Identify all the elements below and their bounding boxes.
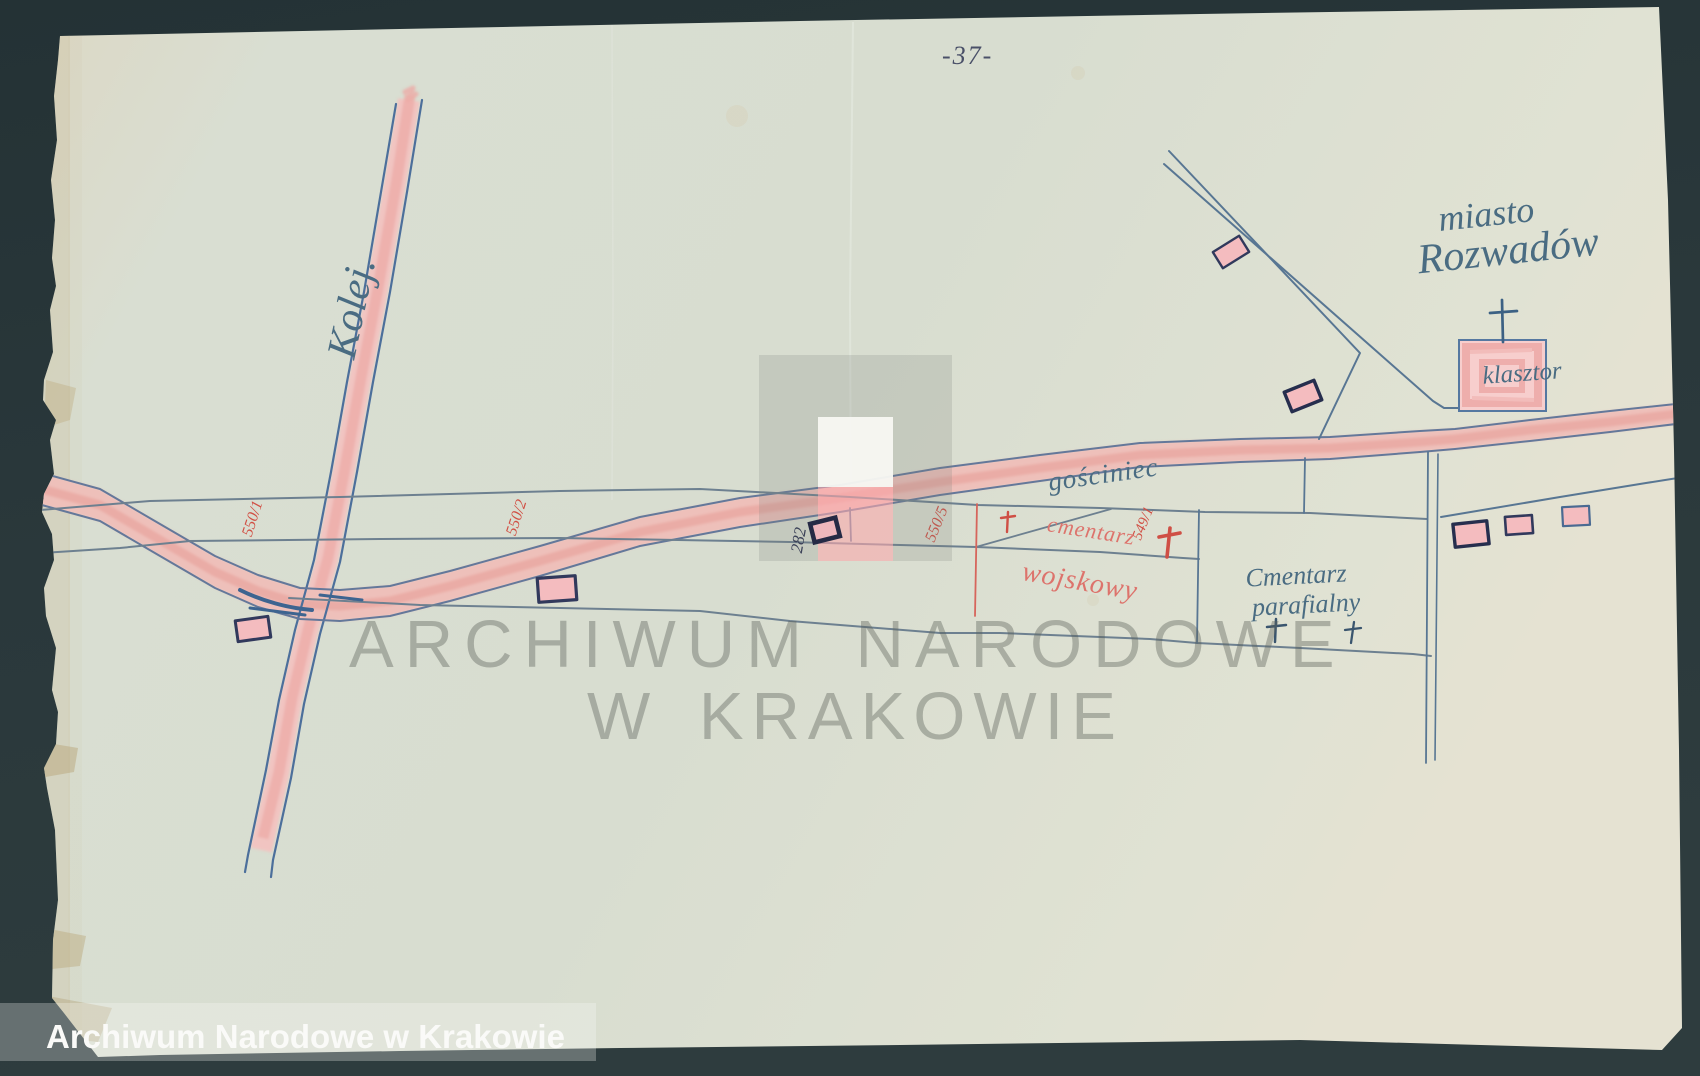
svg-text:W KRAKOWIE: W KRAKOWIE bbox=[587, 679, 1124, 754]
svg-text:ARCHIWUM NARODOWE: ARCHIWUM NARODOWE bbox=[349, 607, 1346, 682]
svg-text:klasztor: klasztor bbox=[1482, 357, 1563, 389]
svg-text:Cmentarz: Cmentarz bbox=[1245, 558, 1348, 592]
svg-text:-37-: -37- bbox=[942, 41, 993, 70]
svg-text:Archiwum Narodowe w Krakowie: Archiwum Narodowe w Krakowie bbox=[46, 1018, 565, 1055]
